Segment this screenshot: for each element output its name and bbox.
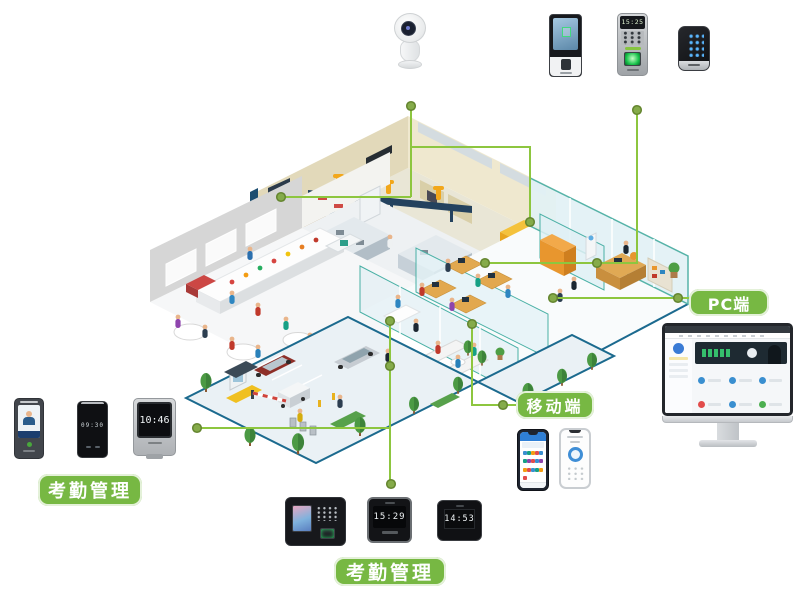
status-led <box>27 442 32 447</box>
label-mobile-client: 移动端 <box>516 391 594 419</box>
fingerprint-access-terminal: 15:25 <box>617 13 648 76</box>
dashboard-main <box>692 339 790 416</box>
keypad-terminal-chin <box>679 61 709 70</box>
label-pc-client: PC端 <box>689 289 769 316</box>
fingerprint-scanner-icon <box>624 52 641 66</box>
pc-monitor <box>659 323 796 453</box>
avatar <box>673 343 684 354</box>
security-camera <box>394 13 426 79</box>
status-led <box>625 47 641 50</box>
monitor-base <box>699 440 757 447</box>
attendance-system-diagram: 考勤管理 考勤管理 移动端 PC端 15:25 <box>0 0 800 597</box>
face-terminal-screen <box>553 18 578 50</box>
clock-attendance-terminal: 14:53 <box>437 500 482 541</box>
dashboard-shortcuts <box>695 369 787 416</box>
camera-base <box>398 60 422 69</box>
clock-in-button-icon <box>568 447 583 462</box>
face-frame-icon <box>562 27 571 37</box>
monitor-stand <box>717 423 739 440</box>
slim-attendance-terminal: 09:30 <box>77 401 108 458</box>
fingerprint-scanner-icon <box>320 528 335 539</box>
browser-bar <box>665 326 790 333</box>
attendance-clock: 09:30 <box>78 422 107 429</box>
camera-lens-icon <box>401 21 416 36</box>
attendance-photo-screen <box>18 405 40 438</box>
camera-head <box>394 13 426 43</box>
attendance-color-screen <box>292 505 312 532</box>
touch-keypad-icon <box>687 32 704 57</box>
label-attendance-management-left: 考勤管理 <box>38 474 142 506</box>
app-grid <box>522 450 544 481</box>
monitor-chin <box>662 416 793 423</box>
dashboard-banner <box>695 342 787 364</box>
keypad-icon <box>621 31 644 45</box>
face-attendance-terminal <box>14 398 44 459</box>
clock-attendance-terminal: 15:29 <box>367 497 412 543</box>
desktop-attendance-terminal: 10:46 <box>133 398 176 456</box>
keypad-icon <box>315 505 338 521</box>
fingerprint-terminal-clock: 15:25 <box>620 16 645 29</box>
dashboard-screen <box>662 323 793 416</box>
dashboard-sidebar <box>665 339 692 416</box>
label-attendance-management-bottom: 考勤管理 <box>334 557 446 586</box>
phone-screen <box>520 432 546 488</box>
camera-neck <box>400 40 420 62</box>
numeric-pad-icon <box>565 465 585 480</box>
attendance-clock: 10:46 <box>137 402 172 438</box>
keypad-attendance-machine <box>285 497 346 546</box>
face-recognition-terminal <box>549 14 582 77</box>
card-reader-icon <box>561 59 571 70</box>
attendance-clock: 15:29 <box>373 506 406 528</box>
mobile-clock-in-phone <box>559 428 591 489</box>
face-terminal-reader <box>550 57 581 76</box>
attendance-clock: 14:53 <box>444 509 475 529</box>
mobile-app-phone <box>517 429 549 491</box>
touch-keypad-terminal <box>678 26 710 71</box>
